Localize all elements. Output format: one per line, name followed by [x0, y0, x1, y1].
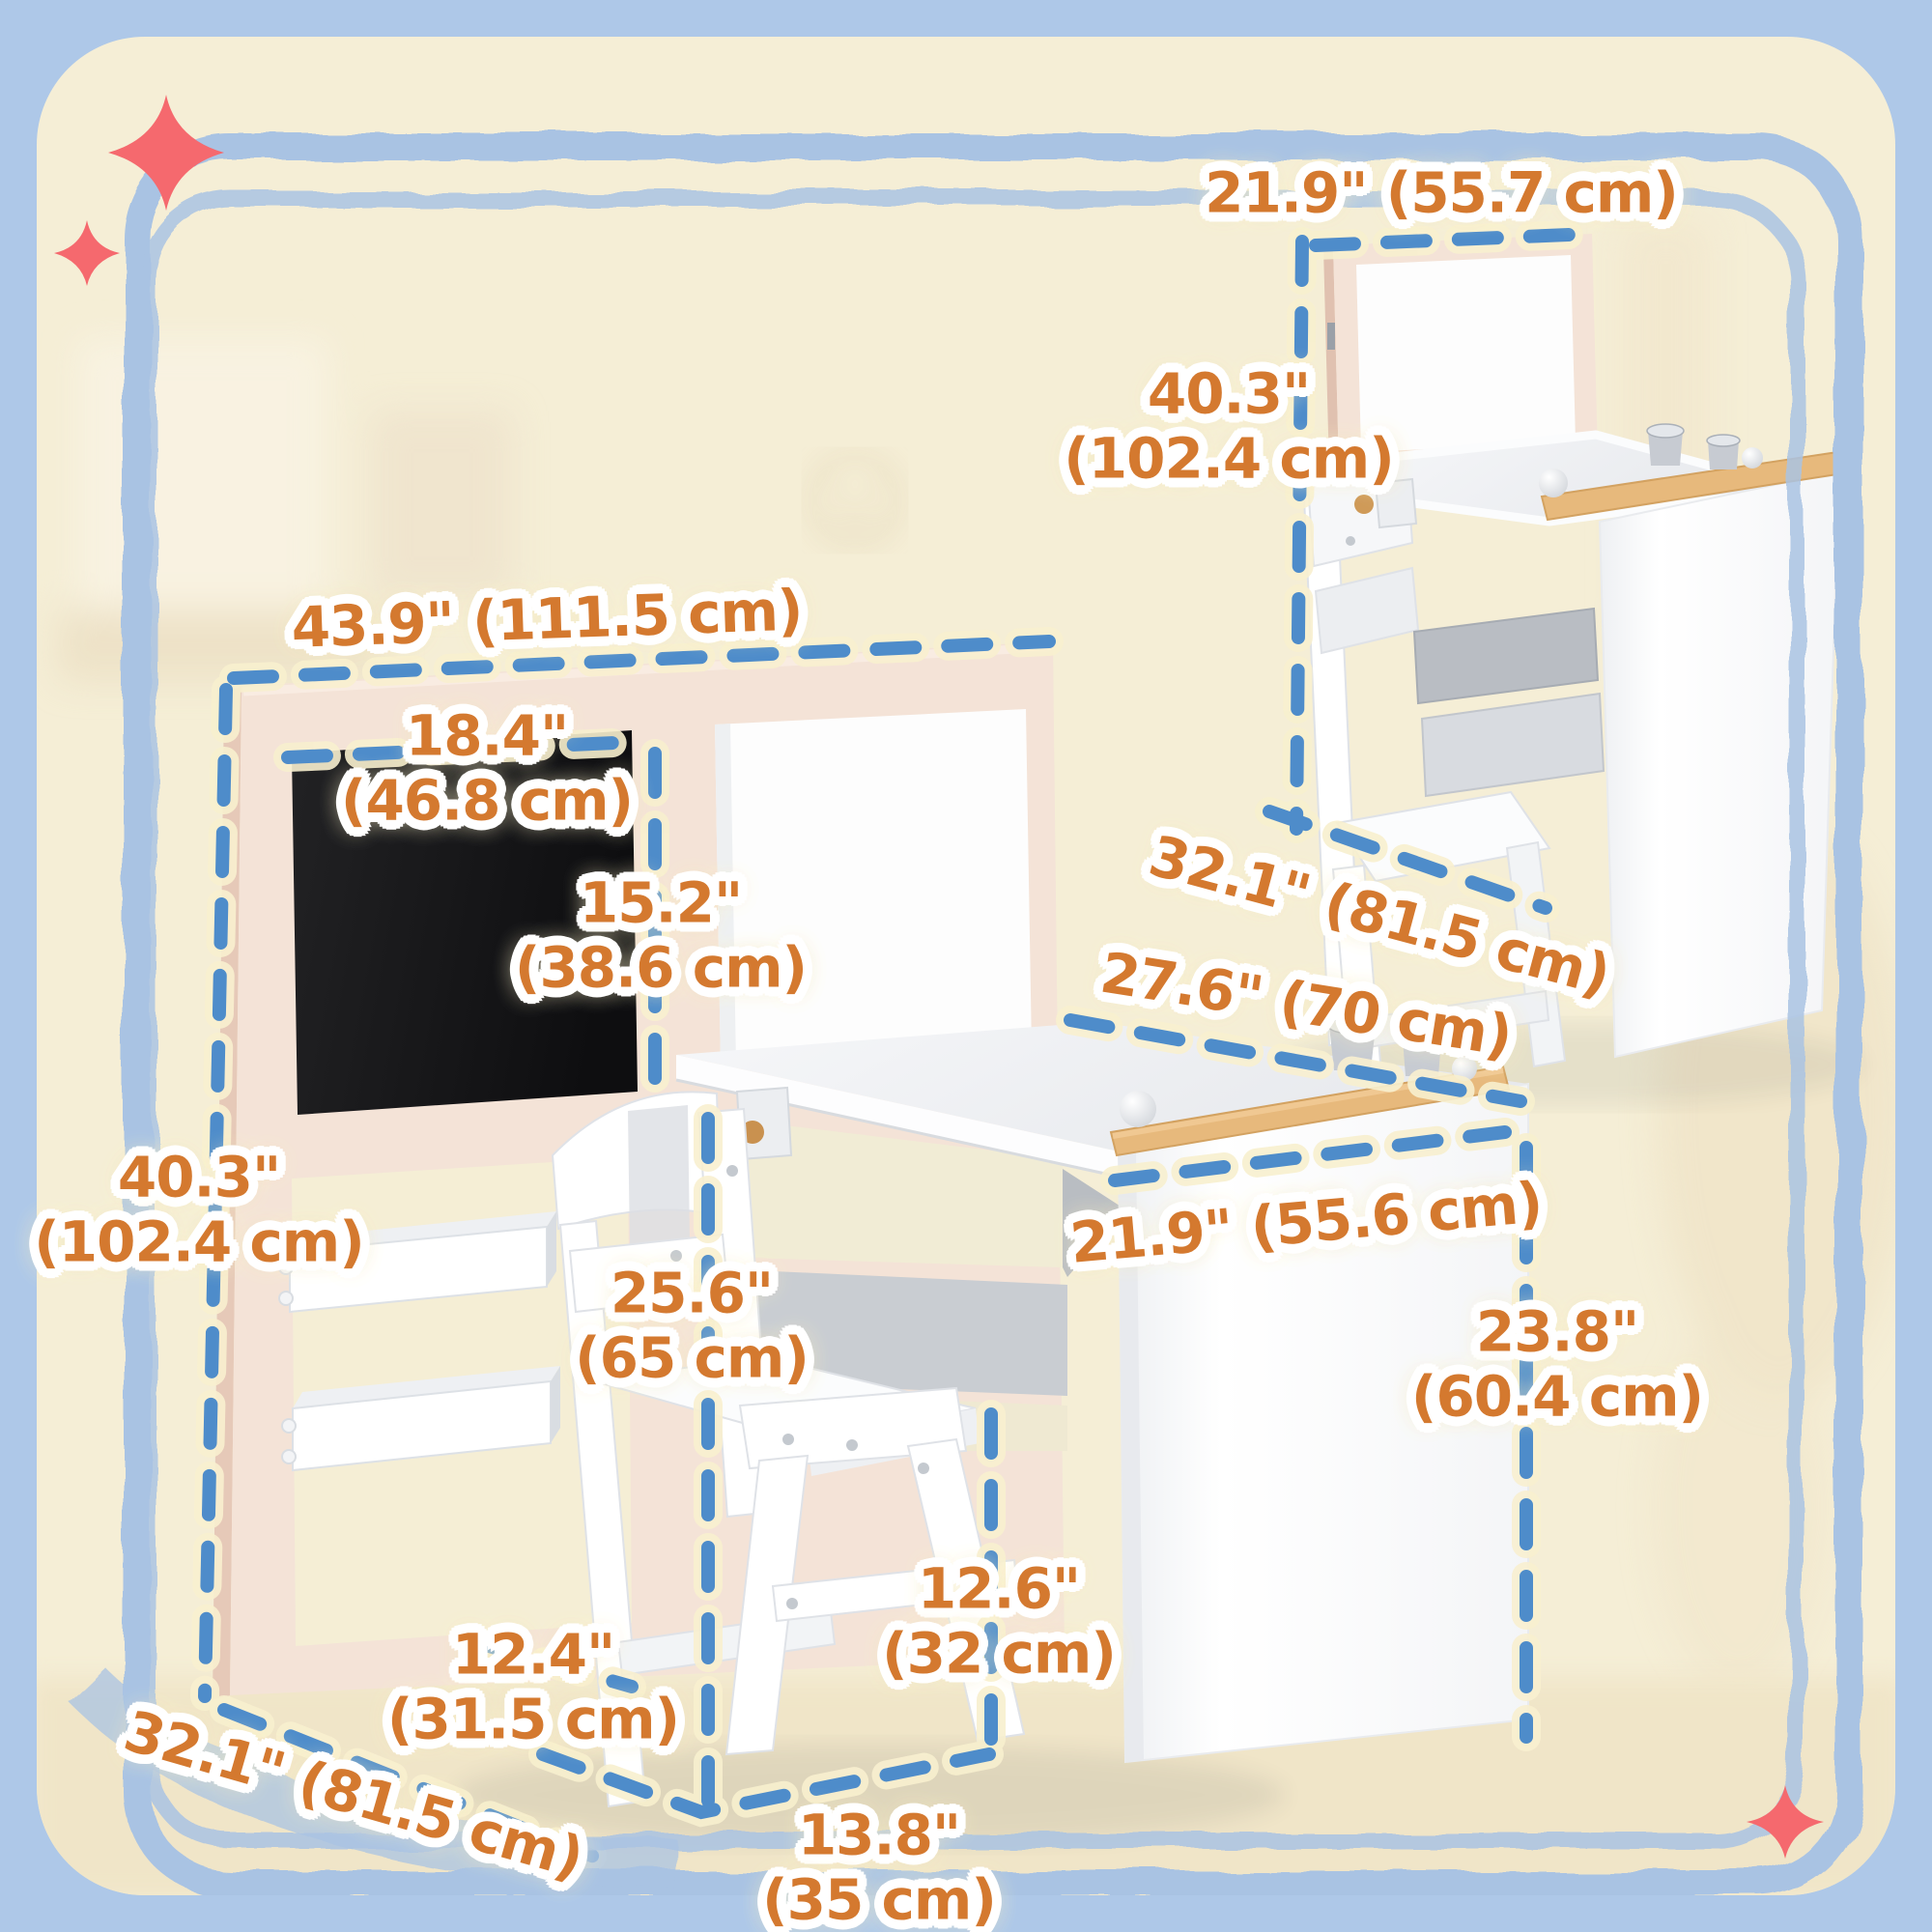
dimension-label-fold-width: 21.9" (55.7 cm) — [1205, 161, 1678, 226]
dimension-label-desk-height: 23.8" (60.4 cm) — [1411, 1299, 1703, 1428]
dimension-label-seat-height: 12.6" (32 cm) — [882, 1556, 1116, 1685]
dimension-label-easel-width: 43.9" (111.5 cm) — [290, 578, 803, 660]
dimension-label-chalkboard-height: 15.2" (38.6 cm) — [515, 870, 807, 999]
dimension-label-fold-height: 40.3" (102.4 cm) — [1064, 361, 1393, 490]
dimension-label-chair-width: 13.8" (35 cm) — [762, 1803, 996, 1931]
dimension-label-desktop-width: 21.9" (55.6 cm) — [1067, 1170, 1545, 1275]
dimension-label-tray-width: 12.4" (31.5 cm) — [387, 1622, 679, 1750]
dimension-labels: 21.9" (55.7 cm) 40.3" (102.4 cm) 32.1" (… — [0, 0, 1932, 1932]
dimension-diagram: 21.9" (55.7 cm) 40.3" (102.4 cm) 32.1" (… — [0, 0, 1932, 1932]
dimension-label-chalkboard-width: 18.4" (46.8 cm) — [341, 703, 633, 832]
dimension-label-chair-height: 25.6" (65 cm) — [575, 1261, 809, 1389]
dimension-label-easel-height: 40.3" (102.4 cm) — [34, 1145, 363, 1273]
